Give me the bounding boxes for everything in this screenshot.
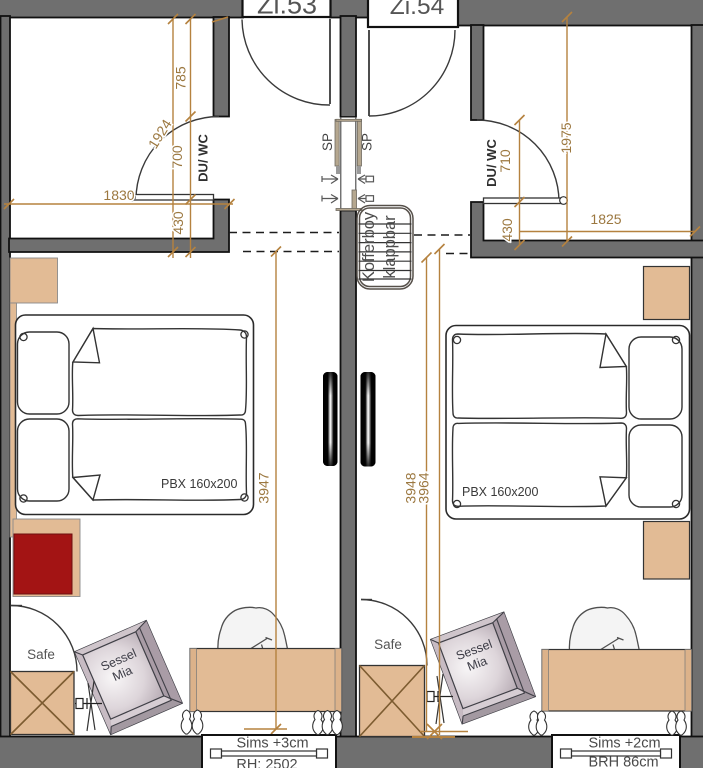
svg-text:3964: 3964 — [416, 472, 432, 503]
svg-text:Safe: Safe — [27, 647, 55, 662]
svg-text:DU/ WC: DU/ WC — [484, 139, 499, 187]
svg-text:710: 710 — [497, 149, 513, 173]
svg-text:SP: SP — [360, 133, 375, 151]
svg-text:BRH 86cm: BRH 86cm — [588, 755, 658, 768]
svg-text:klappbar: klappbar — [381, 215, 399, 279]
svg-text:Safe: Safe — [374, 637, 402, 652]
svg-text:1825: 1825 — [590, 211, 621, 227]
svg-text:PBX 160x200: PBX 160x200 — [161, 477, 237, 491]
svg-text:430: 430 — [499, 218, 515, 242]
svg-text:1975: 1975 — [558, 122, 574, 153]
svg-text:Zi.53: Zi.53 — [257, 0, 317, 20]
svg-text:DU/ WC: DU/ WC — [196, 134, 211, 182]
svg-text:430: 430 — [170, 211, 186, 235]
svg-text:785: 785 — [173, 66, 189, 90]
svg-text:RH: 2502: RH: 2502 — [236, 757, 297, 768]
svg-text:SP: SP — [320, 133, 335, 151]
svg-text:Sims +2cm: Sims +2cm — [588, 736, 660, 752]
svg-text:Zi.54: Zi.54 — [390, 0, 444, 20]
svg-text:PBX 160x200: PBX 160x200 — [462, 485, 538, 499]
svg-text:Sims +3cm: Sims +3cm — [236, 736, 308, 752]
svg-text:3947: 3947 — [256, 472, 272, 503]
svg-text:700: 700 — [169, 145, 185, 169]
svg-text:Kofferboy: Kofferboy — [360, 211, 378, 282]
svg-text:1830: 1830 — [103, 187, 134, 203]
